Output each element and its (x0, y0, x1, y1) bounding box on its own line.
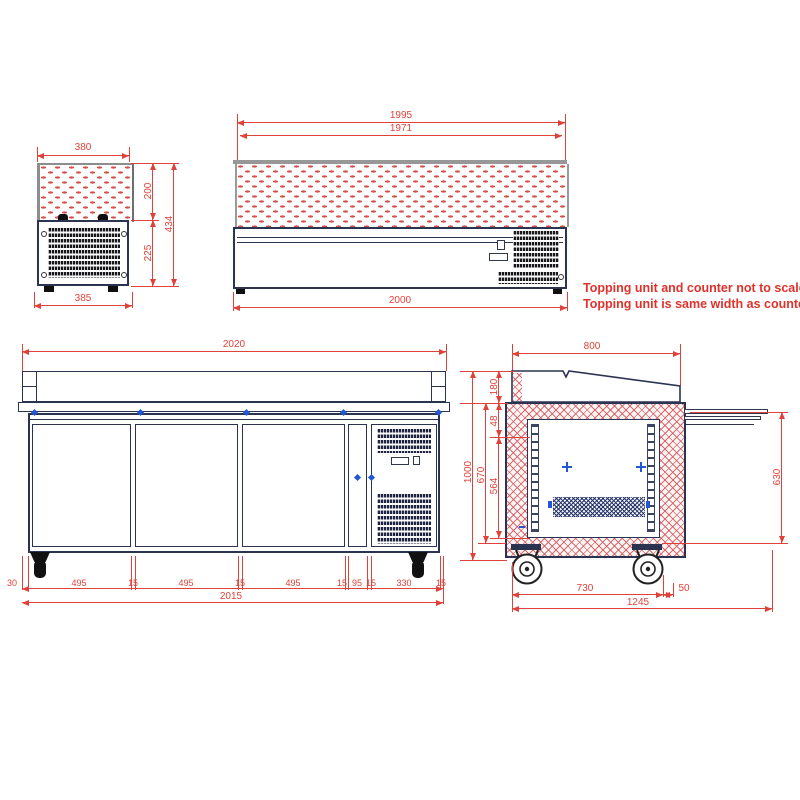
evaporator-coil (553, 497, 645, 517)
dim-label-670: 670 (477, 467, 487, 484)
foot (553, 289, 562, 294)
dim-label-495: 495 (285, 579, 300, 588)
foot (44, 286, 54, 292)
extension-line (673, 583, 674, 597)
screw-icon (41, 272, 47, 278)
extension-line (490, 538, 530, 539)
worktop-cap-line (431, 386, 446, 387)
dim-label-15: 15 (128, 579, 138, 588)
extension-line (690, 412, 788, 413)
shelf-rail-left (531, 424, 539, 532)
extension-line (772, 550, 773, 612)
dim-label-1971: 1971 (390, 124, 412, 134)
extension-line (662, 543, 788, 544)
castor (508, 544, 546, 586)
dim-label-330: 330 (396, 579, 411, 588)
switch (413, 456, 420, 465)
dim-label-630: 630 (773, 469, 783, 486)
dim-label-2000: 2000 (389, 296, 411, 306)
castor (30, 552, 50, 579)
dim-label-180: 180 (490, 379, 500, 396)
scale-note-line1: Topping unit and counter not to scale. (583, 280, 800, 296)
extension-line (478, 543, 506, 544)
dim-label-15: 15 (235, 579, 245, 588)
foot (236, 289, 245, 294)
extension-line (565, 114, 566, 162)
dim-label-434: 434 (165, 216, 175, 233)
foot (108, 286, 118, 292)
worktop-cap-line (22, 386, 36, 387)
dim-line-2000 (233, 307, 567, 308)
controller-display (489, 253, 508, 261)
worktop-upstand (22, 371, 446, 402)
dim-line-380 (37, 155, 129, 156)
extension-line (567, 292, 568, 311)
dim-label-95: 95 (352, 579, 362, 588)
shelf-rail-right (647, 424, 655, 532)
dim-line-50 (663, 594, 673, 595)
glass-hood-side (37, 163, 134, 222)
dim-line-segments (22, 588, 443, 589)
open-door-slab (684, 416, 761, 420)
dim-line-1245 (512, 608, 772, 609)
center-mark (562, 462, 572, 472)
dim-label-200: 200 (144, 183, 154, 200)
interior-liner (527, 419, 660, 538)
blank-panel (348, 424, 367, 547)
dim-label-800: 800 (584, 342, 601, 352)
extension-line (512, 344, 513, 371)
dim-line-385 (34, 305, 132, 306)
glass-hood-front (235, 164, 569, 227)
dim-label-495: 495 (178, 579, 193, 588)
coil-end-marker (646, 501, 650, 508)
dim-label-48: 48 (490, 415, 500, 426)
dim-label-225: 225 (144, 245, 154, 262)
liner-marker (519, 526, 525, 528)
scale-note-line2: Topping unit is same width as counter (583, 296, 800, 312)
dim-line-1971 (240, 135, 562, 136)
dim-label-385: 385 (75, 294, 92, 304)
dim-line-730 (512, 594, 663, 595)
worktop-cap-line (36, 371, 37, 402)
screw-icon (121, 231, 127, 237)
dim-label-564: 564 (490, 478, 500, 495)
condenser-grille (377, 429, 431, 453)
dim-line-800 (512, 353, 680, 354)
door-panel-3 (242, 424, 345, 547)
dim-label-1245: 1245 (627, 598, 649, 608)
screw-icon (558, 274, 564, 280)
extension-line (132, 292, 133, 308)
extension-line (512, 562, 513, 612)
extension-line (348, 556, 349, 590)
screw-icon (41, 231, 47, 237)
dim-label-1000: 1000 (464, 461, 474, 483)
screw-icon (121, 272, 127, 278)
dim-label-2015: 2015 (220, 592, 242, 602)
scale-note: Topping unit and counter not to scale. T… (583, 280, 800, 312)
vent-grille (498, 272, 558, 284)
vent-grille (513, 231, 559, 269)
dim-label-30: 30 (7, 579, 17, 588)
door-panel-1 (32, 424, 131, 547)
controller-display (391, 457, 409, 465)
open-door-line (684, 424, 754, 425)
extension-line (129, 147, 130, 162)
door-panel-2 (135, 424, 238, 547)
vent-grille (48, 228, 120, 278)
topping-shelf-profile (505, 368, 690, 404)
dim-line-2020 (22, 351, 446, 352)
dim-label-2020: 2020 (223, 340, 245, 350)
extension-line (131, 286, 179, 287)
extension-line (460, 371, 515, 372)
dim-label-1995: 1995 (390, 111, 412, 121)
dim-label-50: 50 (678, 584, 689, 594)
dim-label-15: 15 (366, 579, 376, 588)
dim-label-15: 15 (337, 579, 347, 588)
center-mark (636, 462, 646, 472)
switch (497, 240, 505, 250)
condenser-grille (377, 494, 431, 544)
dim-label-380: 380 (75, 143, 92, 153)
extension-line (446, 344, 447, 371)
dim-line-2015 (22, 602, 443, 603)
coil-end-marker (548, 501, 552, 508)
technical-drawing-sheet: 380 385 200 225 434 1995 1971 (0, 0, 800, 800)
dim-label-730: 730 (577, 584, 594, 594)
counter-top-edge (18, 402, 450, 412)
castor (629, 544, 667, 586)
dim-label-495: 495 (71, 579, 86, 588)
top-rail-line (30, 419, 438, 420)
shelf-insulation (513, 373, 522, 401)
extension-line (460, 560, 507, 561)
dim-label-15: 15 (436, 579, 446, 588)
castor (408, 552, 428, 579)
